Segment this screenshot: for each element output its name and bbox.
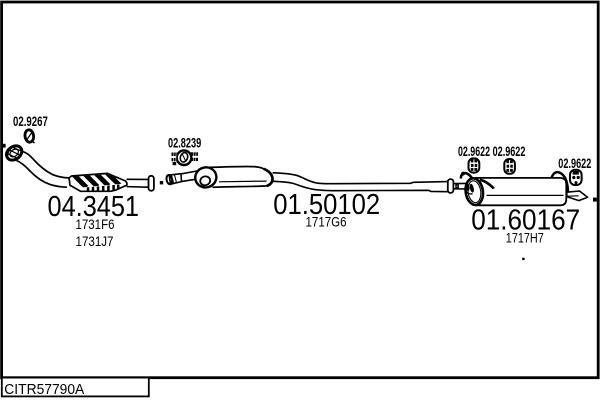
svg-text:02.9622: 02.9622 [458,143,490,159]
svg-text:CITR57790A: CITR57790A [4,382,84,398]
svg-text:1717H7: 1717H7 [506,229,544,245]
svg-text:1731F6: 1731F6 [76,216,115,232]
svg-text:02.8239: 02.8239 [168,135,201,151]
svg-text:02.9622: 02.9622 [558,155,591,171]
svg-text:02.9622: 02.9622 [493,143,526,159]
svg-text:1717G6: 1717G6 [306,214,347,230]
svg-text:02.9267: 02.9267 [13,113,48,129]
svg-text:1731J7: 1731J7 [76,233,114,249]
